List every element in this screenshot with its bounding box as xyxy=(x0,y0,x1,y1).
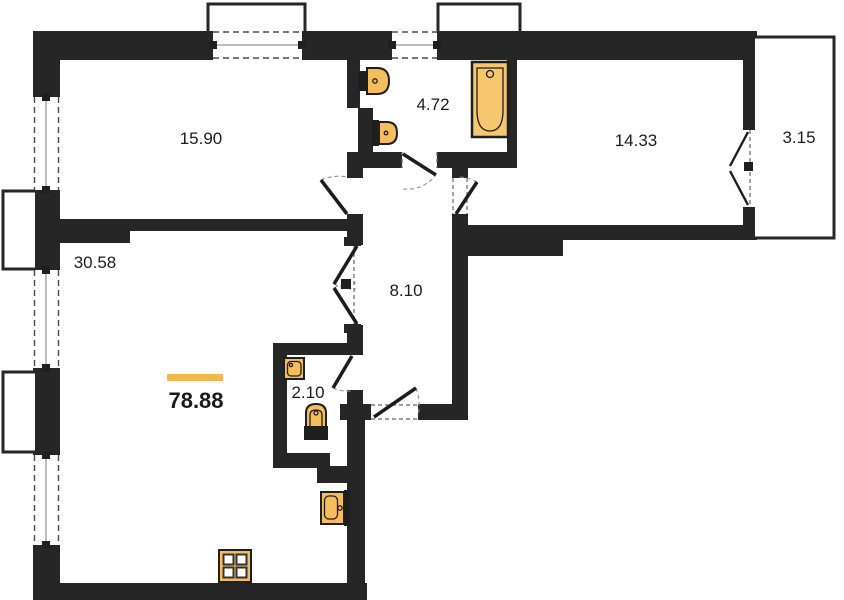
wc-door xyxy=(333,356,352,391)
wall xyxy=(743,31,757,130)
stove-icon xyxy=(219,550,251,582)
wall xyxy=(347,390,363,405)
wall xyxy=(340,404,371,420)
window-bay xyxy=(438,4,520,31)
window-left-3 xyxy=(35,451,59,549)
floor-plan: 15.90 4.72 14.33 3.15 30.58 8.10 2.10 78… xyxy=(0,0,844,600)
area-label-room-top-right: 14.33 xyxy=(615,131,658,150)
door-handle-square xyxy=(744,162,753,171)
area-label-bathroom: 4.72 xyxy=(416,95,449,114)
entrance-door xyxy=(371,388,419,419)
total-area: 78.88 xyxy=(167,374,224,413)
wc-toilet-icon xyxy=(304,404,328,440)
area-labels: 15.90 4.72 14.33 3.15 30.58 8.10 2.10 78… xyxy=(74,95,816,413)
sink-icon xyxy=(372,120,397,146)
wall xyxy=(60,219,347,231)
wall xyxy=(347,152,402,168)
bathtub-icon xyxy=(472,62,508,137)
total-area-label: 78.88 xyxy=(168,388,223,413)
windows xyxy=(35,32,442,549)
window-bay xyxy=(3,191,35,269)
wall xyxy=(437,152,517,168)
area-label-balcony: 3.15 xyxy=(782,128,815,147)
window-left-1 xyxy=(35,93,59,194)
washing-machine-icon xyxy=(284,358,304,379)
room-top-left-door xyxy=(321,176,347,214)
window-top-2 xyxy=(388,32,441,58)
area-label-wc: 2.10 xyxy=(291,383,324,402)
door-meeting-square xyxy=(341,279,351,289)
total-area-accent-bar xyxy=(167,374,223,381)
area-label-room-bottom-left: 30.58 xyxy=(74,253,117,272)
wall xyxy=(33,368,60,455)
wall xyxy=(344,237,361,246)
balcony-door xyxy=(730,130,753,207)
wall xyxy=(33,190,60,270)
wall xyxy=(452,225,757,240)
window-bay xyxy=(3,372,35,452)
wall xyxy=(302,31,392,60)
wall xyxy=(273,453,330,468)
wall xyxy=(452,214,468,404)
bathroom-door xyxy=(402,152,437,189)
wall xyxy=(418,404,468,420)
wall xyxy=(358,108,373,154)
wall xyxy=(60,231,130,243)
wall xyxy=(437,31,757,60)
room-top-right-door xyxy=(453,177,477,214)
window-bay xyxy=(208,4,305,31)
wall xyxy=(468,240,563,256)
area-label-room-top-left: 15.90 xyxy=(180,129,223,148)
kitchen-sink-icon xyxy=(321,490,350,526)
floor-plan-drawing: 15.90 4.72 14.33 3.15 30.58 8.10 2.10 78… xyxy=(0,0,844,600)
wall xyxy=(33,583,367,600)
area-label-hallway: 8.10 xyxy=(389,281,422,300)
double-door xyxy=(334,246,357,324)
wall xyxy=(33,31,60,97)
doors xyxy=(321,130,753,419)
toilet-icon xyxy=(358,68,389,94)
wall xyxy=(347,168,363,178)
walls xyxy=(33,31,757,600)
window-top-1 xyxy=(209,32,306,58)
window-left-2 xyxy=(35,266,59,372)
